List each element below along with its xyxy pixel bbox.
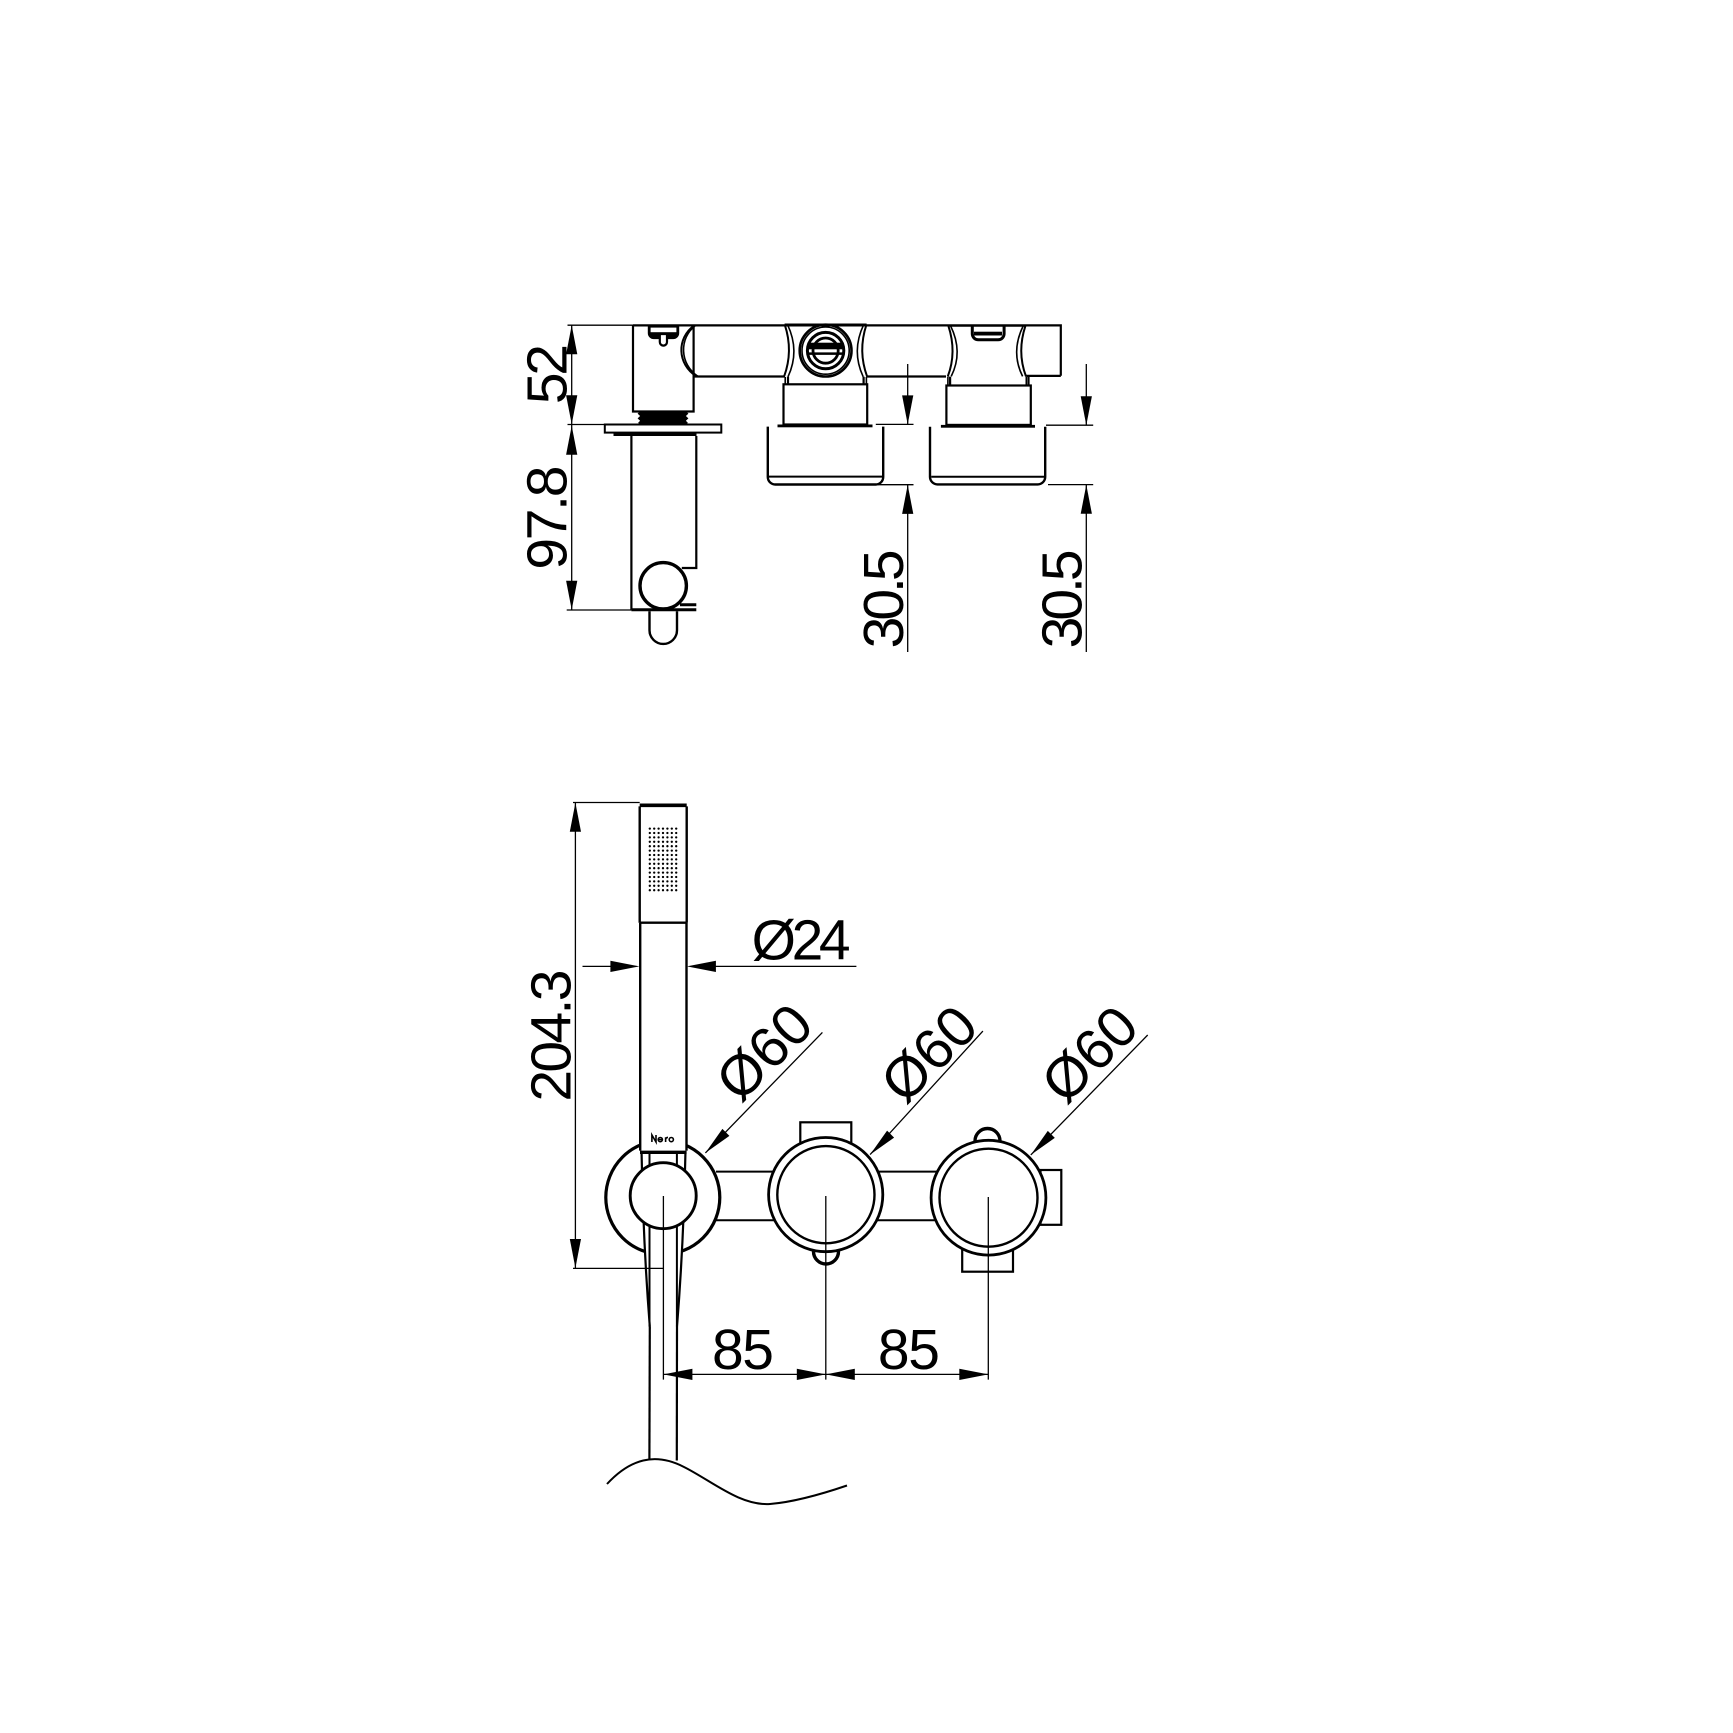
svg-text:30.5: 30.5 <box>1031 549 1095 648</box>
svg-text:30.5: 30.5 <box>852 549 916 648</box>
svg-text:204.3: 204.3 <box>520 970 584 1102</box>
svg-text:Ø24: Ø24 <box>752 909 851 973</box>
svg-text:85: 85 <box>878 1318 940 1382</box>
svg-text:52: 52 <box>516 344 580 404</box>
svg-text:85: 85 <box>712 1318 774 1382</box>
svg-text:97.8: 97.8 <box>515 466 579 570</box>
